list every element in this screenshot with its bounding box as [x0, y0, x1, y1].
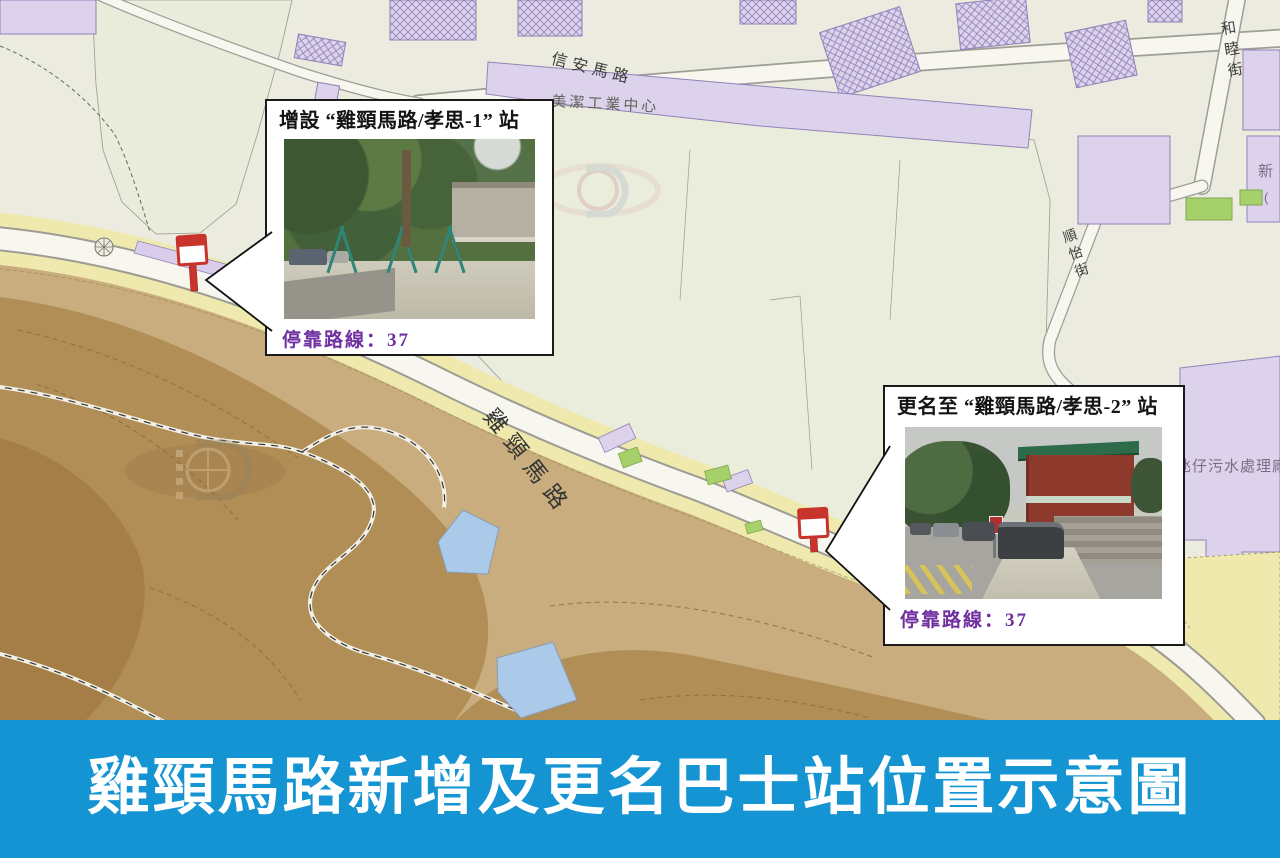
map-label-edge-partial: (	[1264, 190, 1268, 205]
callout-title: 更名至 “雞頸馬路/孝思-2” 站	[885, 387, 1183, 423]
stop-photo-1	[284, 139, 535, 319]
routes-served-label: 停靠路線：37	[267, 319, 552, 352]
roundabout-rosette-icon	[95, 238, 113, 256]
title-banner: 雞頸馬路新增及更名巴士站位置示意圖	[0, 720, 1280, 858]
map-label-edge-partial: 新	[1258, 160, 1273, 181]
map-label-taipa-sewage-plant: 氹仔污水處理廠	[1176, 455, 1280, 476]
callout-renamed-stop: 更名至 “雞頸馬路/孝思-2” 站 停靠路線：37	[883, 385, 1185, 646]
routes-served-label: 停靠路線：37	[885, 599, 1183, 632]
stop-photo-2	[905, 427, 1162, 599]
bus-stop-map-notice: 信安馬路 美潔工業中心 和睦街 順怡街 雞頸馬路 氹仔污水處理廠 新 ( 增設 …	[0, 0, 1280, 858]
callout-new-stop: 增設 “雞頸馬路/孝思-1” 站 停靠路線：37	[265, 99, 554, 356]
page-title: 雞頸馬路新增及更名巴士站位置示意圖	[0, 720, 1280, 858]
callout-title: 增設 “雞頸馬路/孝思-1” 站	[267, 101, 552, 137]
